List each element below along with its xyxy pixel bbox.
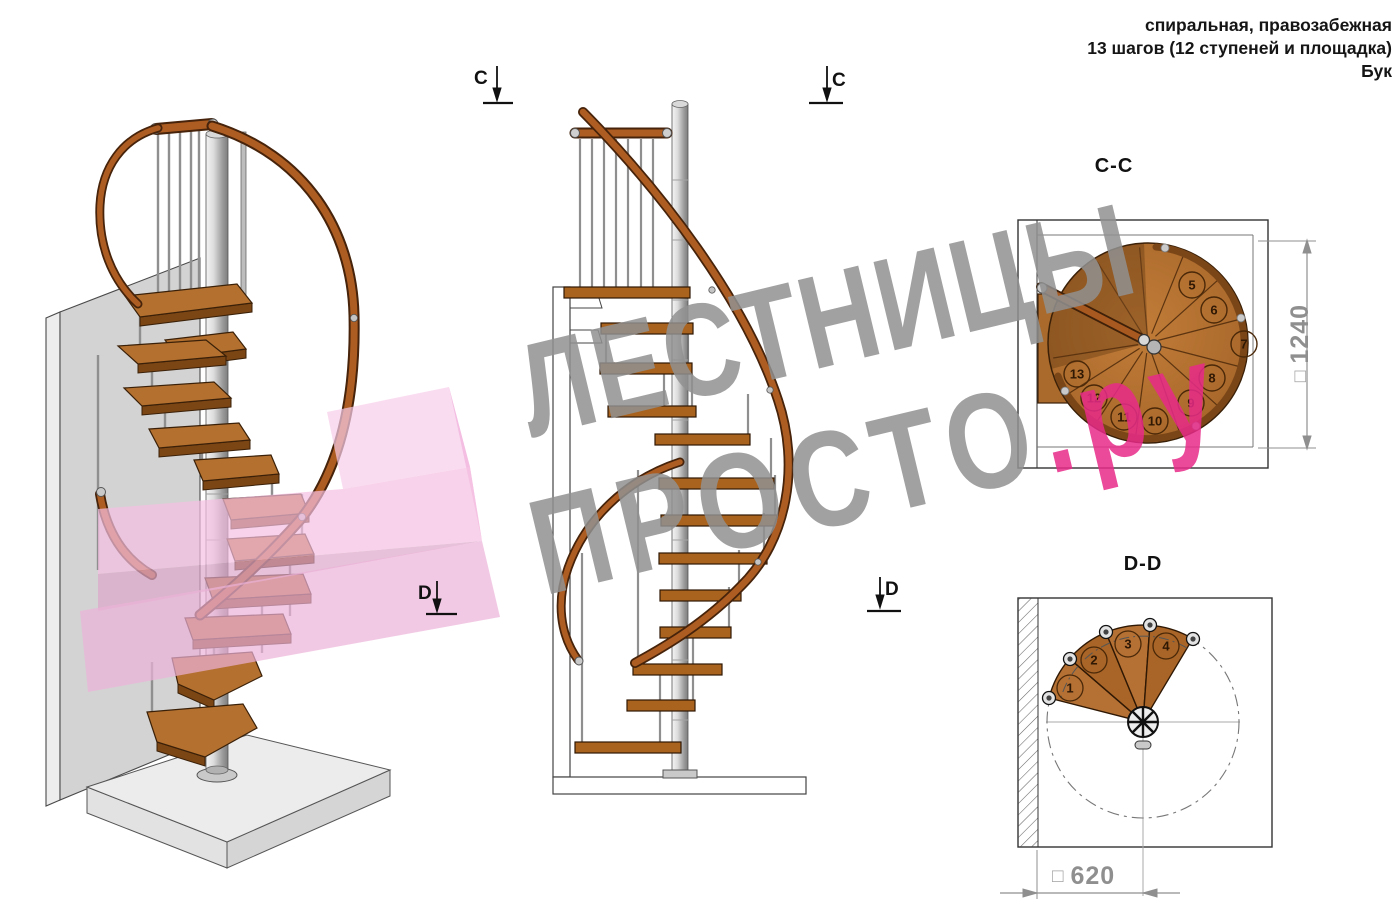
cc-section-title: C-C xyxy=(1074,155,1154,178)
left-3d-view xyxy=(46,119,500,868)
section-marker-c-left: C xyxy=(474,68,488,90)
svg-text:7: 7 xyxy=(1240,337,1247,352)
svg-text:1: 1 xyxy=(1066,681,1073,696)
svg-text:5: 5 xyxy=(1188,278,1195,293)
square-section-symbol: □ xyxy=(1291,371,1310,382)
dd-dimension-620: □ 620 xyxy=(1052,862,1115,891)
stairs-drawing-sheet: 5 6 7 8 9 10 11 12 13 xyxy=(0,0,1400,922)
section-marker-c-right: C xyxy=(832,70,846,92)
svg-text:2: 2 xyxy=(1090,653,1097,668)
section-marker-d-left: D xyxy=(418,583,432,605)
cc-dimension-1240: □ 1240 xyxy=(1287,288,1313,398)
sheet-description: спиральная, правозабежная 13 шагов (12 с… xyxy=(1087,14,1392,83)
stair-type-line: спиральная, правозабежная xyxy=(1087,14,1392,37)
dd-section-title: D-D xyxy=(1103,553,1183,576)
svg-text:6: 6 xyxy=(1210,303,1217,318)
dd-plan-view: 1 2 3 4 xyxy=(1000,598,1272,899)
dd-dimension-value: 620 xyxy=(1070,862,1115,891)
landing-post-3d xyxy=(241,132,246,308)
steps-count-line: 13 шагов (12 ступеней и площадка) xyxy=(1087,37,1392,60)
dd-wall-hatch xyxy=(1018,598,1038,847)
svg-text:4: 4 xyxy=(1162,639,1170,654)
cc-dimension-value: 1240 xyxy=(1286,304,1315,364)
square-section-symbol: □ xyxy=(1052,867,1063,886)
section-marker-d-right: D xyxy=(885,579,899,601)
svg-text:3: 3 xyxy=(1124,637,1131,652)
material-line: Бук xyxy=(1087,60,1392,83)
